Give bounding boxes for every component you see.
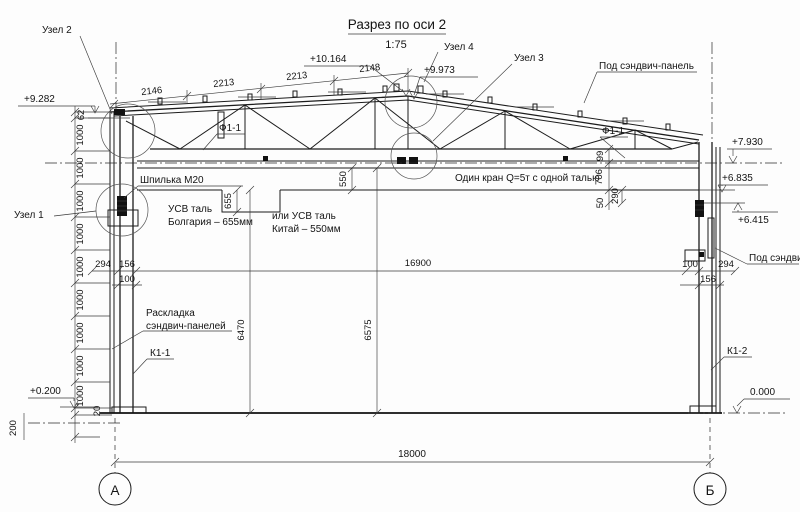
node-2-leader <box>80 36 112 114</box>
dim-2213-b: 2213 <box>286 70 308 83</box>
dim-6575 <box>373 164 381 417</box>
dim-16900: 16900 <box>405 258 431 269</box>
f1-right-label: Ф1-1 <box>602 126 624 137</box>
right-hoist-dot <box>699 252 704 257</box>
f1-left-label: Ф1-1 <box>219 123 241 134</box>
axis-bubbles: А Б <box>99 473 726 505</box>
stud-label: Шпилька М20 <box>140 175 204 186</box>
elev-9973-mark <box>410 77 478 99</box>
k1-2-label: К1-2 <box>727 346 748 357</box>
node-3-label: Узел 3 <box>514 53 544 64</box>
k1-1-leader <box>133 359 174 374</box>
dim-18000: 18000 <box>398 449 426 460</box>
node-1-label: Узел 1 <box>14 210 44 221</box>
dim-row2-ticks <box>114 281 724 289</box>
dim-50: 50 <box>595 198 606 209</box>
elev-6415-mark <box>732 203 778 212</box>
node-3-circle <box>391 133 437 179</box>
dim-1000-2: 1000 <box>75 157 86 178</box>
axis-bottom-ext <box>115 418 710 473</box>
hoist-cn-label-1: или УСВ таль <box>272 211 336 222</box>
elev-6835-mark <box>718 185 768 192</box>
chord-weld-mark-1 <box>263 156 268 161</box>
axis-a-label: А <box>110 483 119 498</box>
axis-b-label: Б <box>706 483 715 498</box>
k1-2-leader <box>711 357 752 370</box>
dim-6470: 6470 <box>236 319 247 340</box>
layout-label-1: Раскладка <box>146 308 195 319</box>
dim-99: 99 <box>595 151 606 162</box>
elev-0200-mark <box>28 398 98 408</box>
dim-1000-3: 1000 <box>75 190 86 211</box>
truss-diagonals <box>126 98 698 149</box>
dim-right-156: 156 <box>700 274 716 285</box>
node-4-label: Узел 4 <box>444 42 474 53</box>
dim-1000-5: 1000 <box>75 256 86 277</box>
dim-right-294: 294 <box>718 259 734 270</box>
elev-6835: +6.835 <box>722 173 753 184</box>
sandwich-right-label: Под сэндвич <box>749 253 800 264</box>
structure <box>100 91 722 413</box>
right-sandwich-piece <box>708 218 714 258</box>
dim-2213-a: 2213 <box>213 77 235 90</box>
texts: Разрез по оси 2 1:75 Узел 2 Узел 1 Узел … <box>8 17 800 460</box>
sandwich-top-leader <box>584 72 697 103</box>
dim-550: 550 <box>338 171 349 187</box>
section-drawing: А Б Разрез по оси 2 1:75 Узел 2 Узел 1 У… <box>0 0 800 512</box>
dim-left-100: 100 <box>119 274 135 285</box>
truss-verticals <box>245 96 635 149</box>
dim-200: 200 <box>8 420 19 436</box>
elevation-marks <box>18 66 790 413</box>
dim-right-100: 100 <box>682 259 698 270</box>
elev-7930: +7.930 <box>732 137 763 148</box>
dim-655: 655 <box>223 193 234 209</box>
drawing-scale: 1:75 <box>385 39 406 51</box>
dim-1000-1: 1000 <box>75 124 86 145</box>
hoist-cn-label-2: Китай – 550мм <box>272 224 341 235</box>
hoist-bg-label-2: Болгария – 655мм <box>168 217 253 228</box>
hoist-bg-label-1: УСВ таль <box>168 204 212 215</box>
dim-2146: 2146 <box>141 85 163 98</box>
dim-left-156: 156 <box>119 259 135 270</box>
dim-20: 20 <box>92 406 103 417</box>
sandwich-top-label: Под сэндвич-панель <box>599 61 694 72</box>
dim-1000-4: 1000 <box>75 223 86 244</box>
dim-1000-6: 1000 <box>75 289 86 310</box>
dim-left-294: 294 <box>95 259 111 270</box>
dim-1000-8: 1000 <box>75 355 86 376</box>
layout-leader <box>112 331 232 349</box>
dim-1000-9: 1000 <box>75 385 86 406</box>
crane-note: Один кран Q=5т с одной талью <box>455 173 600 184</box>
elev-9973: +9.973 <box>424 65 455 76</box>
dim-706: 706 <box>594 169 605 185</box>
elev-0000: 0.000 <box>750 387 775 398</box>
chord-weld-mark-2 <box>563 156 568 161</box>
elev-7930-mark <box>727 149 772 163</box>
k1-1-label: К1-1 <box>150 348 171 359</box>
elev-9282: +9.282 <box>24 94 55 105</box>
elev-6415: +6.415 <box>738 215 769 226</box>
elev-0000-mark <box>733 399 790 413</box>
dim-1000-7: 1000 <box>75 322 86 343</box>
dim-6575: 6575 <box>363 319 374 340</box>
elev-10164: +10.164 <box>310 54 347 65</box>
right-hoist-bracket <box>695 200 704 217</box>
dim-290: 290 <box>610 188 621 204</box>
node-2-label: Узел 2 <box>42 25 72 36</box>
dim-62: 62 <box>76 110 87 121</box>
drawing-sheet: А Б Разрез по оси 2 1:75 Узел 2 Узел 1 У… <box>0 0 800 512</box>
dim-2148: 2148 <box>359 62 381 75</box>
elev-0200: +0.200 <box>30 386 61 397</box>
layout-label-2: сэндвич-панелей <box>146 321 226 332</box>
drawing-title: Разрез по оси 2 <box>348 17 446 32</box>
